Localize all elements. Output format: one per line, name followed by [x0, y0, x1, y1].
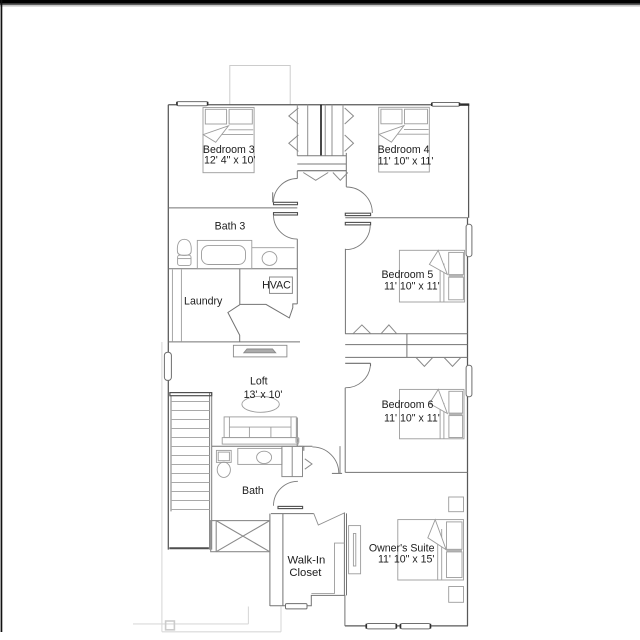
svg-text:Loft: Loft — [250, 376, 268, 388]
svg-text:Walk-In: Walk-In — [287, 555, 325, 567]
svg-text:Bath: Bath — [242, 485, 264, 497]
svg-text:Laundry: Laundry — [184, 296, 223, 308]
svg-text:Closet: Closet — [289, 567, 322, 579]
svg-text:Bath 3: Bath 3 — [215, 221, 246, 233]
svg-text:11' 10" x 11': 11' 10" x 11' — [378, 156, 434, 168]
svg-text:11' 10" x 11': 11' 10" x 11' — [384, 280, 440, 292]
svg-text:13' x 10': 13' x 10' — [244, 389, 283, 401]
svg-text:Bedroom 5: Bedroom 5 — [381, 269, 433, 281]
svg-text:HVAC: HVAC — [262, 279, 291, 291]
svg-text:11' 10" x 11': 11' 10" x 11' — [384, 413, 440, 425]
svg-text:11' 10" x 15': 11' 10" x 15' — [378, 554, 435, 566]
svg-text:12' 4" x 10': 12' 4" x 10' — [204, 154, 255, 166]
svg-text:Bedroom 6: Bedroom 6 — [382, 399, 434, 411]
svg-text:Bedroom 4: Bedroom 4 — [378, 144, 430, 156]
